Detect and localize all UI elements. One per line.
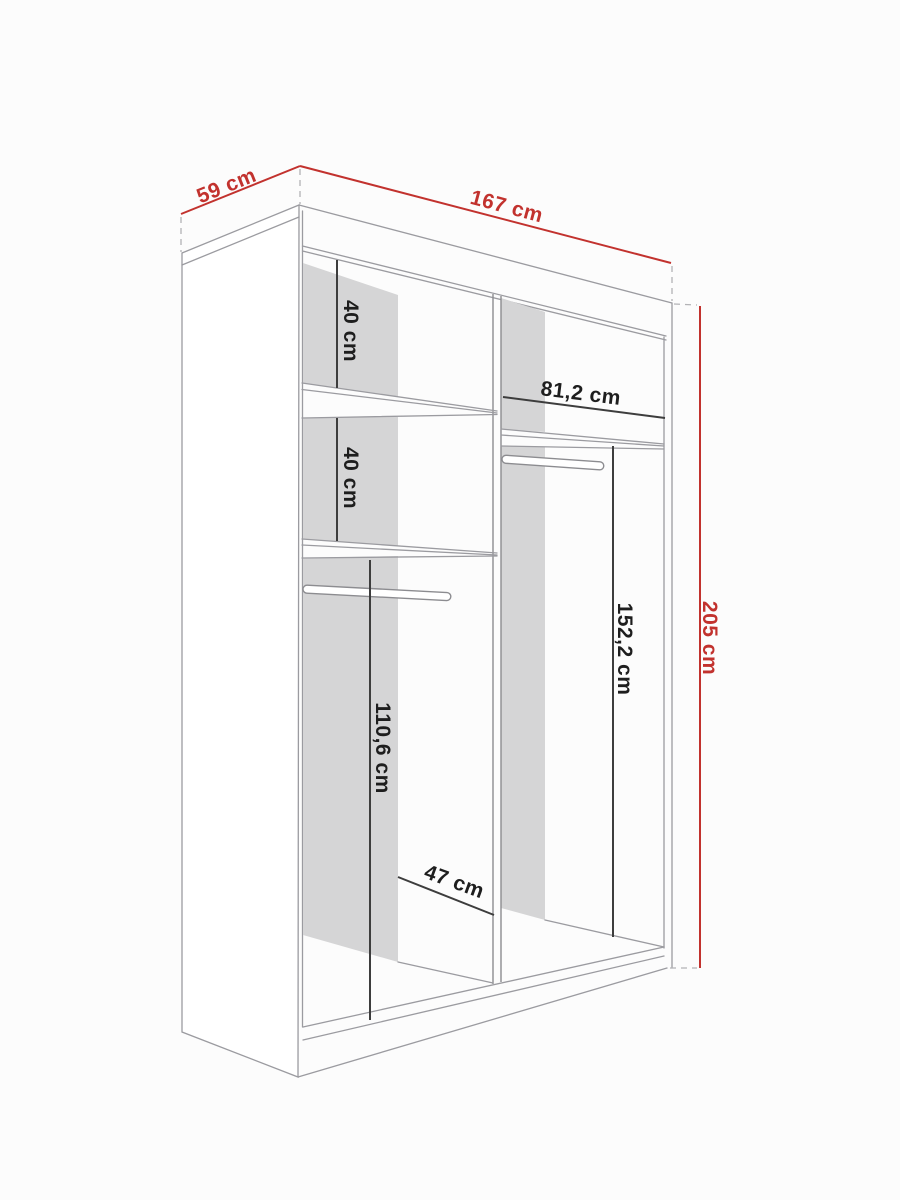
left-side-panel xyxy=(182,205,299,1077)
dim-label-left-top-section: 40 cm xyxy=(339,300,362,362)
dim-label-left-second-section: 40 cm xyxy=(339,447,362,509)
dim-label-right-hanging-height: 152,2 cm xyxy=(613,603,636,696)
dim-label-left-hanging-height: 110,6 cm xyxy=(371,702,394,794)
background xyxy=(0,0,900,1200)
wardrobe-dimension-diagram: 59 cm 167 cm 205 cm 40 cm 40 cm 81,2 cm … xyxy=(0,0,900,1200)
wardrobe-drawing: 59 cm 167 cm 205 cm 40 cm 40 cm 81,2 cm … xyxy=(0,0,900,1200)
dim-label-height: 205 cm xyxy=(698,601,721,675)
